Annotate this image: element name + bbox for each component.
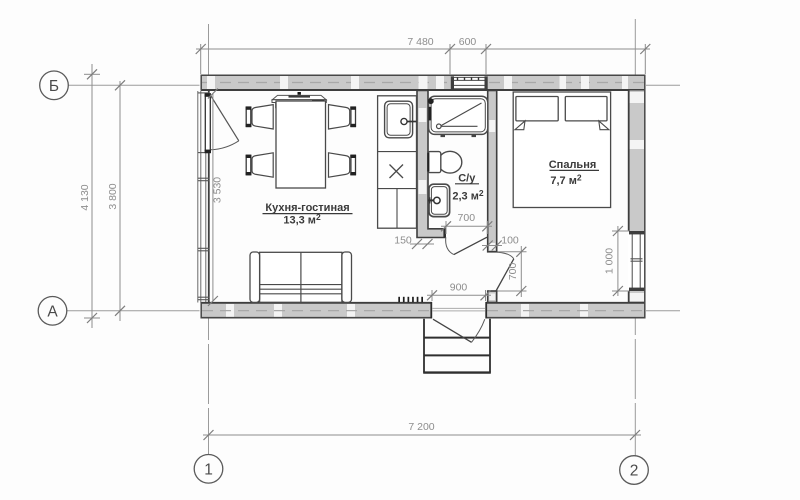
svg-text:Б: Б bbox=[49, 78, 59, 95]
svg-text:Спальня: Спальня bbox=[549, 159, 597, 171]
svg-text:7 200: 7 200 bbox=[408, 421, 434, 433]
svg-text:700: 700 bbox=[507, 262, 519, 280]
svg-text:7 480: 7 480 bbox=[407, 36, 433, 48]
svg-text:600: 600 bbox=[459, 36, 477, 48]
svg-text:С/у: С/у bbox=[458, 173, 476, 185]
svg-text:1 000: 1 000 bbox=[604, 248, 616, 274]
svg-text:150: 150 bbox=[394, 235, 412, 247]
svg-text:Кухня-гостиная: Кухня-гостиная bbox=[265, 202, 349, 214]
svg-text:2: 2 bbox=[630, 463, 639, 480]
svg-text:900: 900 bbox=[450, 281, 468, 293]
svg-text:100: 100 bbox=[501, 235, 519, 247]
svg-text:700: 700 bbox=[458, 212, 476, 224]
svg-text:4 130: 4 130 bbox=[79, 184, 91, 210]
svg-text:3 800: 3 800 bbox=[107, 183, 119, 209]
svg-text:1: 1 bbox=[204, 462, 213, 479]
svg-text:3 530: 3 530 bbox=[212, 177, 224, 203]
svg-text:А: А bbox=[47, 304, 58, 321]
svg-text:13,3 м2: 13,3 м2 bbox=[283, 212, 321, 227]
